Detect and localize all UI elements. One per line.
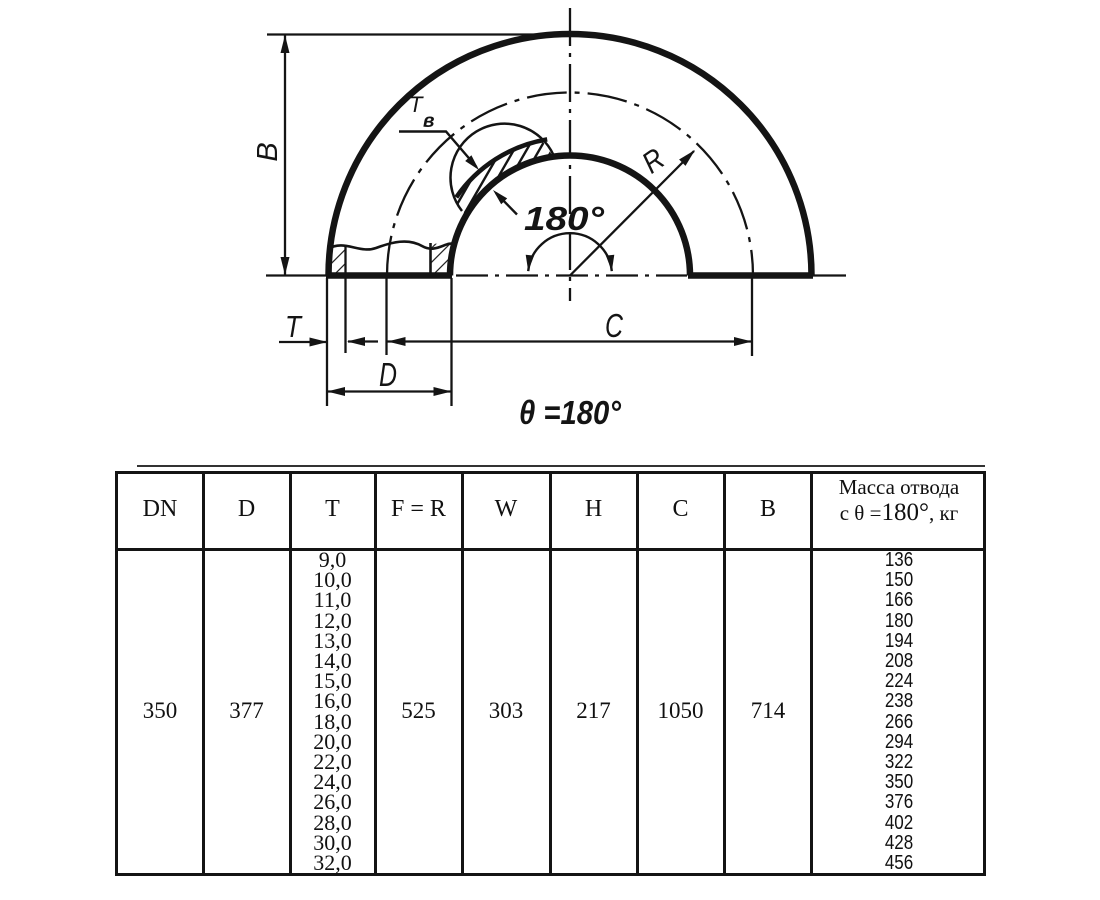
svg-text:θ =180°: θ =180° (519, 394, 622, 431)
svg-text:R: R (636, 142, 670, 180)
svg-text:180°: 180° (524, 200, 605, 237)
svg-text:T: T (285, 309, 303, 344)
svg-text:D: D (379, 356, 397, 393)
svg-text:в: в (423, 111, 434, 132)
svg-text:T: T (409, 92, 424, 117)
svg-text:C: C (605, 307, 624, 344)
svg-text:B: B (252, 142, 284, 161)
